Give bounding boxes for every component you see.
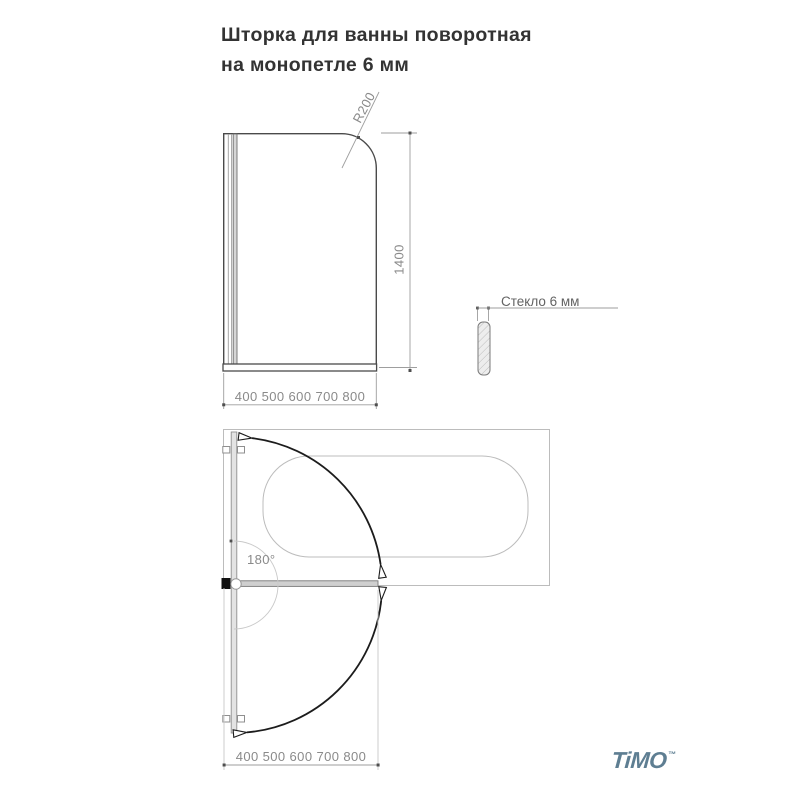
bathtub-outline — [263, 456, 528, 557]
product-drawing-page: Шторка для ванны поворотная на монопетле… — [0, 0, 800, 800]
radius-point-dot — [357, 136, 360, 139]
screen-end-bracket — [238, 716, 245, 723]
side-view — [476, 307, 618, 375]
screen-end-bracket — [238, 447, 245, 454]
screen-end-bracket — [223, 447, 230, 454]
dim-end-dot — [409, 369, 412, 372]
trademark-symbol: ™ — [668, 750, 677, 759]
bottom-rail — [223, 364, 377, 371]
pivot-point — [231, 579, 241, 589]
glass-panel-outline — [224, 134, 377, 371]
height-dimension-label: 1400 — [392, 238, 407, 282]
technical-drawing — [0, 0, 800, 800]
hinge-profile-bar — [233, 134, 237, 364]
glass-thickness-label: Стекло 6 мм — [501, 294, 579, 309]
arc-reference-dot — [230, 540, 233, 543]
top-width-dimension-label: 400 500 600 700 800 — [224, 749, 378, 764]
top-view — [222, 430, 550, 771]
hinge-block — [222, 578, 231, 589]
front-view — [222, 92, 417, 409]
glass-cross-section — [478, 322, 490, 375]
dim-end-dot — [409, 132, 412, 135]
swing-arrow-inward — [252, 438, 381, 564]
swing-angle-label: 180° — [247, 552, 276, 567]
brand-logo-text: TiMO — [611, 747, 668, 773]
screen-closed-position — [236, 581, 378, 587]
swing-arrow-outward — [247, 601, 381, 733]
brand-logo: TiMO™ — [610, 747, 693, 789]
front-width-dimension-label: 400 500 600 700 800 — [223, 389, 377, 404]
